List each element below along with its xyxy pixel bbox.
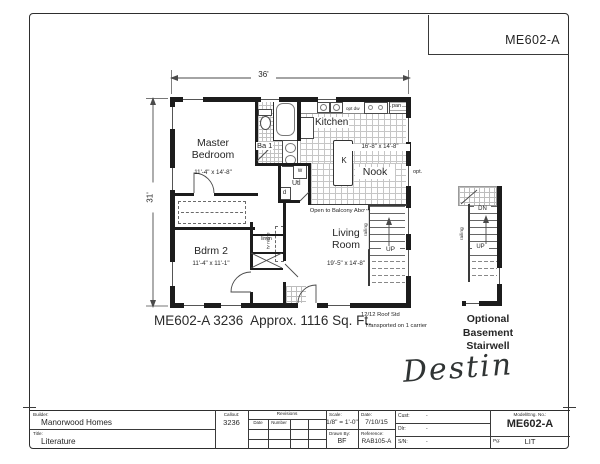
- drawing-line: [248, 439, 326, 440]
- wall-segment: [250, 222, 253, 270]
- drawnby-value: BF: [326, 438, 358, 446]
- window-glass-line: [172, 107, 173, 129]
- window-glass-line: [466, 303, 479, 304]
- dryer-label: d: [278, 190, 291, 197]
- drawnby-label: Drawn By:: [329, 431, 350, 436]
- kitchen-sink-left-basin: [320, 104, 327, 111]
- window-glass-line: [408, 166, 409, 186]
- stair-railing-label: railing: [364, 210, 369, 249]
- wall-segment: [170, 227, 255, 230]
- wall-segment: [255, 97, 258, 166]
- refrigerator: [300, 117, 314, 139]
- model-value: ME602-A: [490, 418, 570, 430]
- callout-label: Callout:: [216, 412, 247, 417]
- revisions-label: Revisions: [248, 412, 326, 417]
- wall-segment: [170, 193, 194, 196]
- kitchen-label: Kitchen: [314, 117, 349, 128]
- cust-label: Cust:: [398, 414, 410, 420]
- wall-segment: [250, 292, 253, 308]
- window-glass-line: [183, 99, 203, 100]
- reference-value: RAB105-A: [358, 438, 395, 445]
- dim-height-label: 31': [147, 182, 156, 212]
- drawing-line: [308, 419, 309, 449]
- date-value: 7/10/15: [358, 419, 395, 427]
- title-label: Title:: [33, 431, 43, 436]
- exterior-wall-top: [170, 97, 411, 102]
- utility-label: Utl: [291, 180, 302, 188]
- basement-stair-treads-dashed: [470, 261, 497, 282]
- corner-box-hline: [428, 54, 569, 55]
- vanity-basin-1: [285, 143, 296, 153]
- master-bedroom-label: Master Bedroom: [181, 138, 245, 162]
- living-room-dim: 19'-5" x 14'-8": [314, 261, 378, 268]
- drawing-line: [395, 423, 490, 424]
- window-glass-line: [221, 305, 241, 306]
- callout-value: 3236: [216, 419, 247, 427]
- toilet-bowl: [260, 116, 271, 130]
- wall-segment: [214, 193, 258, 196]
- stair-head-line: [368, 204, 407, 206]
- builder-value: Manorwood Homes: [41, 418, 112, 427]
- corner-box-vline: [428, 15, 429, 54]
- window-glass-line: [261, 99, 279, 100]
- drawing-line: [30, 429, 215, 430]
- foyer-floor-hatch: [286, 286, 306, 304]
- scale-label: Scale:: [329, 412, 342, 417]
- bedroom2-dim: 11'-4" x 11'-1": [180, 261, 242, 268]
- wall-segment: [308, 163, 311, 205]
- drawing-line: [290, 419, 291, 449]
- sheet-model-label: ME602-A: [438, 33, 560, 47]
- scale-value: 1/8" = 1'-0": [326, 419, 358, 426]
- window-glass-line: [318, 99, 336, 100]
- sn-value: -: [426, 440, 428, 446]
- tub-basin: [276, 103, 295, 136]
- basement-railing-line: [468, 204, 470, 282]
- roof-note-2: Transported on 1 carrier: [365, 323, 427, 329]
- pg-value: LIT: [490, 438, 570, 446]
- master-bedroom-dim: 11'-4" x 14'-8": [177, 170, 249, 177]
- range-burner-2: [378, 105, 383, 110]
- builder-label: Builder:: [33, 412, 49, 417]
- date-label: Date:: [361, 412, 372, 417]
- window-glass-line: [499, 268, 500, 284]
- basement-detail-hatch: [458, 186, 497, 206]
- basement-up-label: UP: [472, 244, 489, 251]
- kitchen-sink-right-basin: [333, 104, 340, 111]
- stair-up-label: UP: [381, 246, 400, 253]
- wall-segment: [250, 268, 283, 270]
- range-burner-1: [368, 105, 373, 110]
- basement-wall-right: [497, 186, 502, 268]
- wall-segment: [278, 163, 311, 166]
- basement-railing-label: railing: [460, 214, 465, 253]
- wall-segment: [297, 97, 301, 141]
- toilet-tank: [258, 109, 272, 116]
- dlr-label: Dlr:: [398, 427, 406, 433]
- fold-tick-right: [563, 407, 576, 408]
- window-glass-line: [172, 168, 173, 190]
- washer-label: w: [293, 168, 307, 175]
- title-value: Literature: [41, 437, 76, 446]
- drawing-line: [248, 429, 326, 430]
- pantry-label: pan: [391, 103, 402, 109]
- tv-niche-label: tv niche: [266, 219, 271, 263]
- opt-dishwasher-label: opt dw: [345, 106, 361, 111]
- model-label: Model/Eng. No.:: [490, 412, 570, 417]
- exterior-wall-bottom: [170, 303, 411, 308]
- rev-date-label: Date: [248, 421, 268, 426]
- basement-dn-label: DN: [474, 206, 491, 213]
- sn-label: S/N:: [398, 440, 408, 446]
- cust-value: -: [426, 414, 428, 420]
- window-glass-line: [408, 250, 409, 276]
- roof-note-1: 12/12 Roof Std: [361, 312, 400, 318]
- rev-number-label: Number: [268, 421, 290, 426]
- nook-label: Nook: [355, 167, 395, 179]
- wall-segment: [278, 200, 300, 203]
- fold-tick-left: [23, 407, 36, 408]
- window-glass-line: [408, 118, 409, 142]
- window-glass-line: [408, 208, 409, 234]
- drawing-line: [395, 410, 396, 449]
- front-door-gap: [298, 303, 317, 308]
- reference-label: Reference:: [361, 431, 383, 436]
- dim-width-label: 36': [251, 71, 276, 80]
- window-glass-line: [172, 262, 173, 286]
- drawing-line: [395, 436, 490, 437]
- basement-stair-treads: [470, 206, 497, 259]
- bedroom2-label: Bdrm 2: [184, 246, 238, 258]
- kitchen-dim: 16'-8" x 14'-8": [350, 144, 410, 151]
- window-glass-line: [184, 305, 204, 306]
- opt-window-label: opt.: [413, 169, 422, 175]
- window-glass-line: [328, 305, 350, 306]
- dlr-value: -: [426, 427, 428, 433]
- wall-segment: [283, 282, 286, 308]
- bath1-label: Ba 1: [256, 142, 273, 150]
- master-closet-rod: [181, 212, 243, 213]
- wall-segment: [283, 203, 286, 261]
- wall-segment: [278, 163, 281, 203]
- kitchen-island-label: K: [336, 157, 352, 166]
